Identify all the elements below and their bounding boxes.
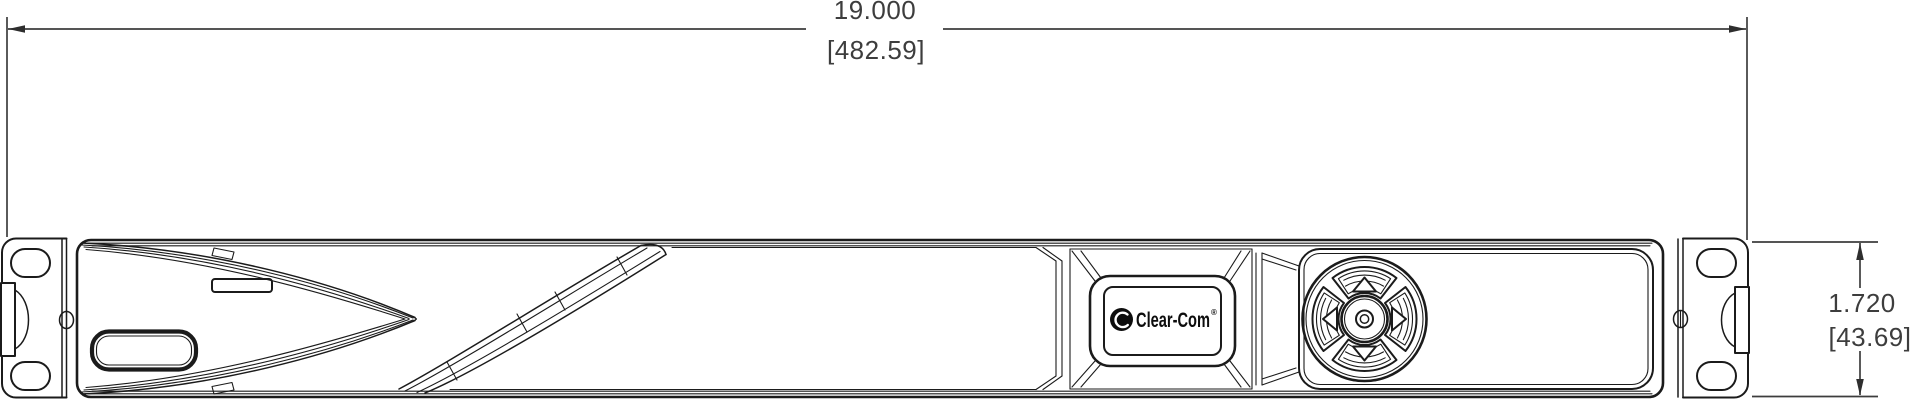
height-value-inches: 1.720 — [1828, 288, 1896, 318]
dpad-left-button — [1312, 287, 1344, 351]
dpad-recess-outline — [1299, 249, 1653, 389]
swoosh-seam-bottom — [212, 383, 234, 395]
dpad-outer-ring — [1303, 257, 1427, 381]
dpad-down-button — [1333, 340, 1397, 372]
rounded-button — [92, 332, 196, 370]
height-dimension: 1.720 [43.69] — [1752, 242, 1912, 397]
height-value-millimeters: [43.69] — [1828, 322, 1911, 352]
height-arrow-up — [1856, 243, 1864, 260]
width-value-millimeters: [482.59] — [827, 35, 925, 65]
bezel-outline — [77, 240, 1663, 397]
mounting-slot-bottom-left — [11, 362, 50, 390]
width-arrow-right — [1729, 25, 1746, 33]
mounting-slot-top-right — [1697, 249, 1736, 277]
navigation-dpad — [1303, 257, 1427, 381]
mounting-slot-top-left — [11, 249, 50, 277]
left-rack-ear — [1, 239, 74, 398]
registered-trademark-symbol: ® — [1211, 308, 1217, 317]
right-screw — [1674, 311, 1688, 328]
width-value-inches: 19.000 — [834, 0, 917, 25]
width-arrow-left — [8, 25, 25, 33]
indicator-window — [212, 279, 272, 292]
dpad-center-knob — [1342, 296, 1388, 342]
right-ear-flange-tab — [1722, 287, 1750, 353]
height-arrow-down — [1856, 379, 1864, 396]
diagonal-trim-band — [399, 245, 666, 393]
badge-section: Clear-Com ® — [1070, 249, 1252, 389]
left-ear-flange-tab — [1, 283, 29, 356]
rack-panel-dimension-drawing: 19.000 [482.59] 1.720 [43.69] — [0, 0, 1920, 401]
dpad-section — [1256, 249, 1653, 389]
clear-com-badge: Clear-Com ® — [1090, 276, 1235, 366]
right-rack-ear — [1674, 239, 1750, 398]
brand-wordmark: Clear-Com — [1136, 309, 1210, 332]
center-section — [450, 248, 1062, 390]
mounting-slot-bottom-right — [1697, 362, 1736, 390]
front-panel-bezel — [77, 240, 1663, 397]
width-dimension: 19.000 [482.59] — [7, 0, 1747, 240]
dpad-up-button — [1333, 267, 1397, 299]
dpad-right-button — [1385, 287, 1417, 351]
technical-drawing-canvas: 19.000 [482.59] 1.720 [43.69] — [0, 0, 1920, 401]
